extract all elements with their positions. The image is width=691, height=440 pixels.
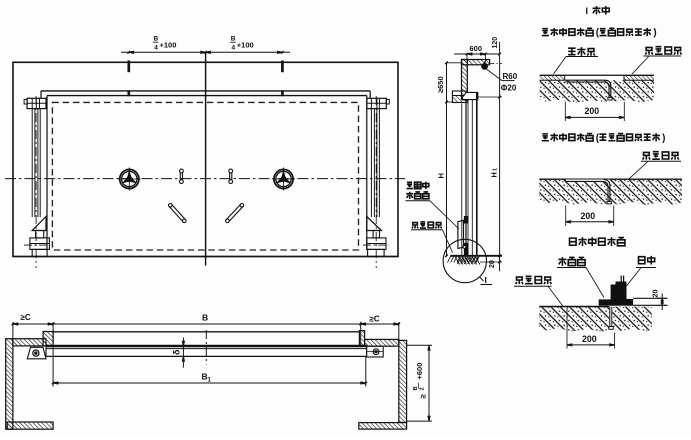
svg-text:4: 4 (154, 44, 158, 51)
svg-text:200: 200 (581, 211, 596, 221)
svg-text:+100: +100 (160, 41, 177, 50)
svg-text:1: 1 (493, 168, 499, 171)
svg-text:I: I (485, 275, 487, 285)
svg-text:B: B (413, 386, 419, 390)
svg-text:B: B (231, 36, 236, 43)
svg-text:≥: ≥ (419, 394, 428, 399)
svg-text:4: 4 (232, 44, 236, 51)
svg-text:≥C: ≥C (21, 313, 31, 322)
svg-text:(: ( (596, 133, 600, 144)
svg-text:B: B (202, 313, 208, 323)
svg-text:≥650: ≥650 (436, 76, 445, 93)
svg-text:+100: +100 (237, 41, 254, 50)
svg-text:(: ( (596, 28, 600, 39)
svg-text:B: B (154, 36, 159, 43)
svg-text:): ) (653, 28, 656, 39)
svg-text:): ) (662, 133, 665, 144)
svg-text:200: 200 (582, 334, 597, 344)
svg-text:600: 600 (470, 44, 483, 53)
svg-text:20: 20 (489, 260, 496, 268)
svg-text:I: I (586, 6, 589, 16)
svg-text:H: H (437, 173, 446, 178)
svg-text:2: 2 (420, 387, 426, 390)
svg-text:H: H (490, 172, 499, 177)
svg-text:200: 200 (585, 106, 600, 116)
svg-text:≥C: ≥C (370, 314, 380, 323)
svg-text:+600: +600 (415, 363, 424, 380)
svg-text:Φ20: Φ20 (501, 84, 517, 93)
svg-text:20: 20 (651, 290, 660, 298)
svg-text:120: 120 (492, 37, 499, 49)
svg-text:δ: δ (172, 349, 182, 355)
svg-text:R60: R60 (503, 72, 518, 81)
